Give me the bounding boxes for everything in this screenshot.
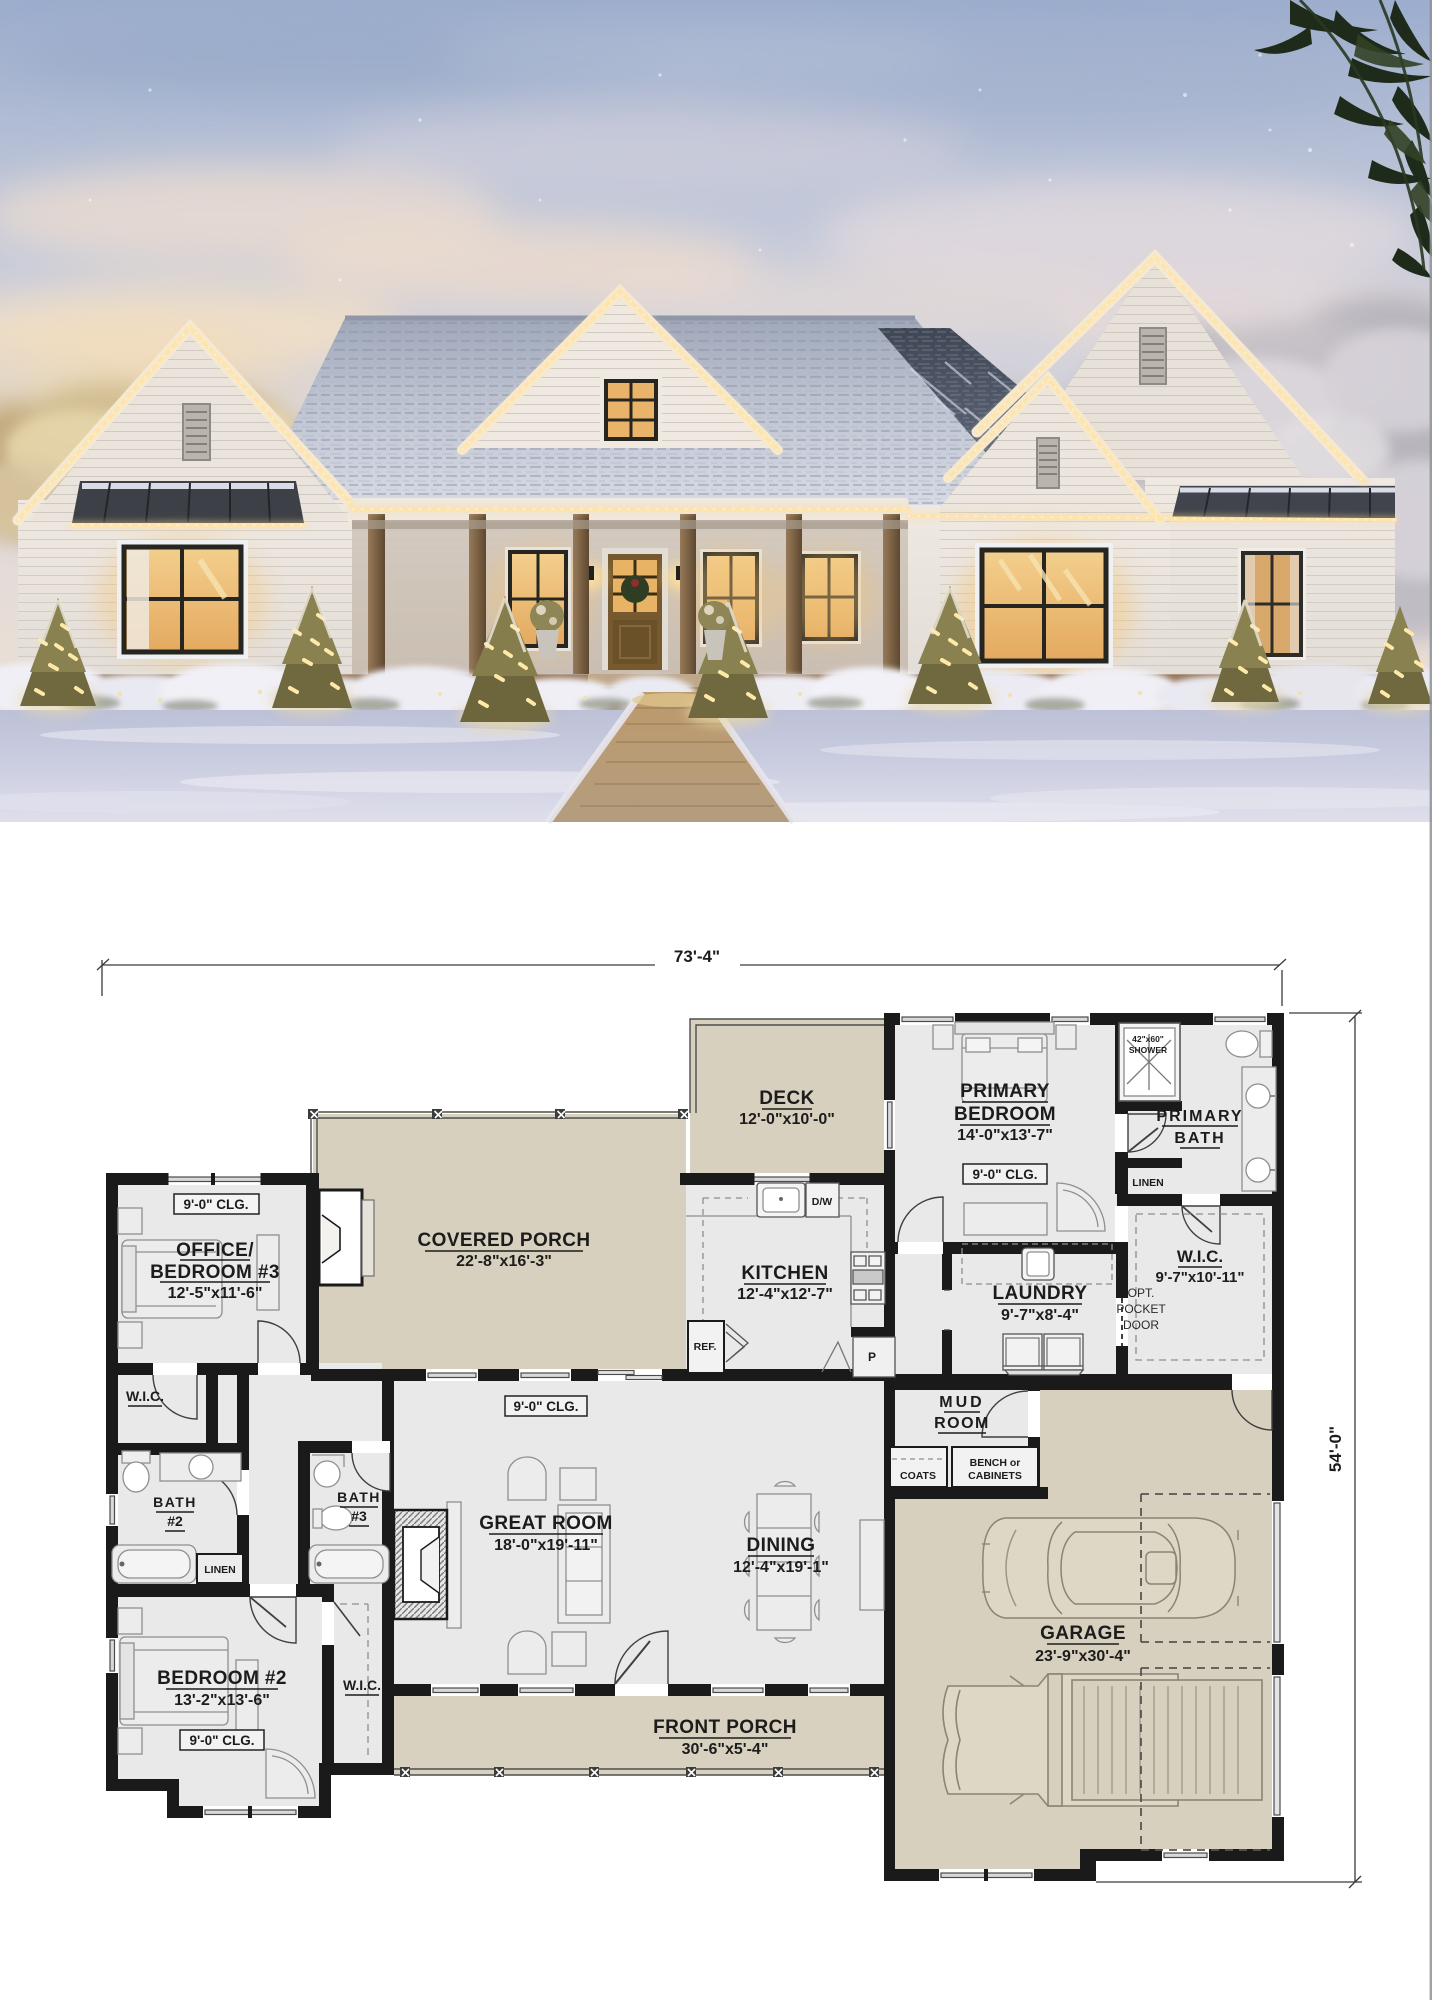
svg-text:REF.: REF. <box>694 1341 717 1353</box>
svg-text:BATH: BATH <box>337 1489 381 1505</box>
svg-text:KITCHEN: KITCHEN <box>741 1263 828 1284</box>
svg-text:BATH: BATH <box>1174 1130 1225 1147</box>
svg-text:COVERED PORCH: COVERED PORCH <box>417 1230 590 1251</box>
svg-text:LINEN: LINEN <box>204 1564 236 1576</box>
svg-text:9'-0" CLG.: 9'-0" CLG. <box>183 1197 248 1212</box>
svg-text:BEDROOM #3: BEDROOM #3 <box>150 1262 280 1283</box>
svg-text:W.I.C.: W.I.C. <box>126 1388 164 1404</box>
svg-text:OPT.: OPT. <box>1128 1286 1155 1300</box>
svg-text:12'-5"x11'-6": 12'-5"x11'-6" <box>168 1285 263 1302</box>
svg-text:BEDROOM #2: BEDROOM #2 <box>157 1668 287 1689</box>
svg-text:COATS: COATS <box>900 1470 936 1482</box>
svg-text:9'-7"x8'-4": 9'-7"x8'-4" <box>1001 1307 1079 1324</box>
svg-text:D/W: D/W <box>812 1196 833 1208</box>
svg-text:23'-9"x30'-4": 23'-9"x30'-4" <box>1035 1648 1131 1665</box>
svg-text:54'-0": 54'-0" <box>1326 1426 1345 1472</box>
svg-text:73'-4": 73'-4" <box>674 947 720 966</box>
svg-text:12'-4"x19'-1": 12'-4"x19'-1" <box>733 1559 829 1576</box>
svg-text:SHOWER: SHOWER <box>1129 1045 1167 1055</box>
svg-text:#3: #3 <box>351 1508 367 1524</box>
svg-text:PRIMARY: PRIMARY <box>1156 1108 1243 1125</box>
svg-text:DOOR: DOOR <box>1123 1318 1159 1332</box>
svg-text:9'-0" CLG.: 9'-0" CLG. <box>972 1167 1037 1182</box>
svg-text:BATH: BATH <box>153 1494 197 1510</box>
svg-text:W.I.C.: W.I.C. <box>1177 1247 1223 1266</box>
svg-text:LAUNDRY: LAUNDRY <box>993 1283 1088 1304</box>
svg-text:DINING: DINING <box>747 1535 816 1556</box>
svg-text:GREAT ROOM: GREAT ROOM <box>479 1513 612 1534</box>
svg-text:22'-8"x16'-3": 22'-8"x16'-3" <box>456 1253 552 1270</box>
svg-text:PRIMARY: PRIMARY <box>960 1081 1050 1102</box>
svg-text:FRONT PORCH: FRONT PORCH <box>653 1717 797 1738</box>
svg-text:9'-7"x10'-11": 9'-7"x10'-11" <box>1156 1269 1245 1286</box>
svg-text:W.I.C.: W.I.C. <box>343 1677 381 1693</box>
svg-text:DECK: DECK <box>759 1088 814 1109</box>
svg-text:30'-6"x5'-4": 30'-6"x5'-4" <box>682 1741 769 1758</box>
svg-text:12'-4"x12'-7": 12'-4"x12'-7" <box>737 1286 833 1303</box>
svg-text:CABINETS: CABINETS <box>968 1470 1022 1482</box>
svg-text:POCKET: POCKET <box>1116 1302 1166 1316</box>
svg-text:ROOM: ROOM <box>934 1415 990 1432</box>
svg-text:13'-2"x13'-6": 13'-2"x13'-6" <box>174 1692 270 1709</box>
svg-text:BEDROOM: BEDROOM <box>954 1104 1056 1125</box>
svg-text:14'-0"x13'-7": 14'-0"x13'-7" <box>957 1127 1053 1144</box>
svg-text:GARAGE: GARAGE <box>1040 1623 1126 1644</box>
svg-text:BENCH or: BENCH or <box>970 1457 1021 1469</box>
svg-text:9'-0" CLG.: 9'-0" CLG. <box>189 1733 254 1748</box>
svg-text:OFFICE/: OFFICE/ <box>176 1240 254 1261</box>
svg-text:42"x60": 42"x60" <box>1132 1034 1164 1044</box>
svg-text:12'-0"x10'-0": 12'-0"x10'-0" <box>739 1111 835 1128</box>
svg-text:MUD: MUD <box>939 1394 984 1411</box>
svg-text:P: P <box>868 1350 876 1364</box>
svg-text:LINEN: LINEN <box>1132 1177 1164 1189</box>
svg-text:18'-0"x19'-11": 18'-0"x19'-11" <box>494 1537 598 1554</box>
svg-text:9'-0" CLG.: 9'-0" CLG. <box>513 1399 578 1414</box>
svg-text:#2: #2 <box>167 1513 183 1529</box>
